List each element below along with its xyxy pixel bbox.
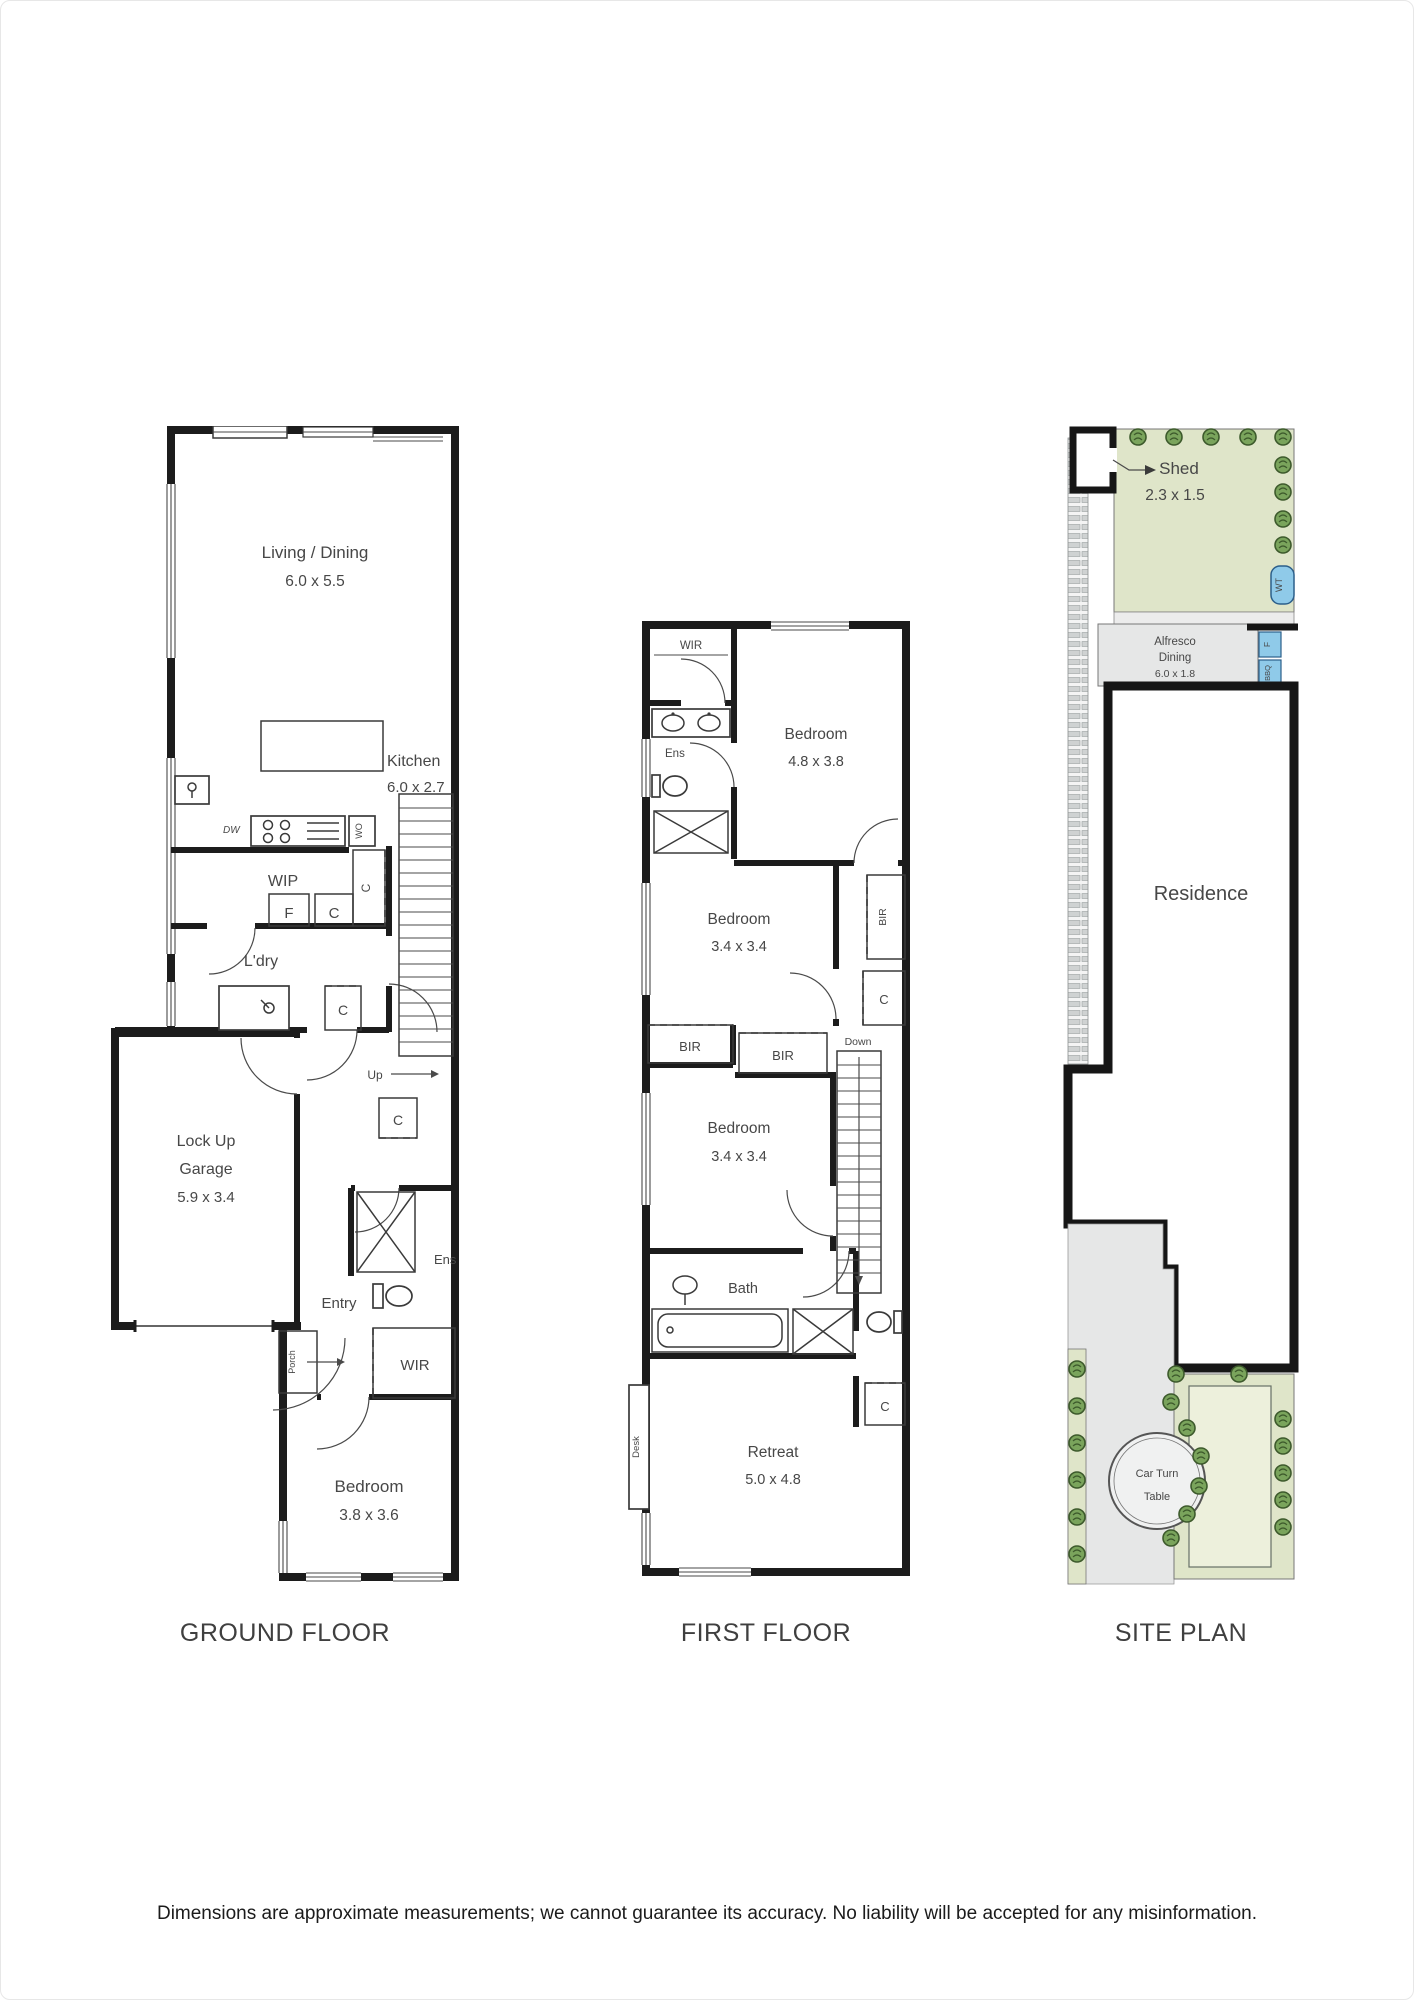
bath-basin <box>673 1276 697 1305</box>
retreat-label: Retreat <box>748 1444 800 1461</box>
bedroom2-dims: 3.4 x 3.4 <box>711 939 767 955</box>
shed-dims: 2.3 x 1.5 <box>1145 487 1204 504</box>
retreat-dims: 5.0 x 4.8 <box>745 1472 801 1488</box>
alfresco-label-1: Alfresco <box>1154 636 1196 648</box>
svg-text:C: C <box>880 1399 889 1414</box>
outdoor-fridge: F <box>1259 632 1281 657</box>
wip-label: WIP <box>268 873 298 890</box>
bedroom2-label: Bedroom <box>708 911 771 928</box>
bedroom1-dims: 4.8 x 3.8 <box>788 754 844 770</box>
ground-floor-plan: DW WO F C C <box>111 426 459 1594</box>
svg-text:C: C <box>393 1112 403 1128</box>
residence-label: Residence <box>1154 883 1249 905</box>
site-plan-svg: Shed 2.3 x 1.5 WT Alfresco Dining 6.0 x … <box>1061 424 1301 1601</box>
laundry-cupboard: C <box>325 986 361 1030</box>
svg-text:C: C <box>359 883 373 892</box>
wall-oven: WO <box>349 816 375 846</box>
toilet <box>373 1284 412 1308</box>
alfresco-label-2: Dining <box>1159 652 1192 664</box>
dishwasher-label: DW <box>223 825 241 836</box>
wir-label: WIR <box>680 640 702 652</box>
svg-text:WT: WT <box>1274 578 1284 592</box>
caption-first-floor: FIRST FLOOR <box>681 1619 851 1648</box>
entry-label: Entry <box>321 1295 357 1312</box>
wc-toilet <box>867 1311 902 1333</box>
fridge-label: F <box>284 905 293 922</box>
up-label: Up <box>367 1068 383 1082</box>
kitchen-label: Kitchen <box>387 753 440 770</box>
alfresco-dims: 6.0 x 1.8 <box>1155 668 1195 680</box>
svg-text:F: F <box>1262 642 1272 647</box>
kitchen-island <box>261 721 383 771</box>
garage-door <box>135 1320 273 1332</box>
svg-text:WO: WO <box>354 823 364 839</box>
bir-right-closet: BIR <box>867 875 905 959</box>
kitchen-dims: 6.0 x 2.7 <box>387 779 445 796</box>
kitchen-sink <box>175 776 209 804</box>
water-tank: WT <box>1271 566 1294 604</box>
first-floor-plan: WIR Ens Bedroom 4.8 x 3.8 Bedroom 3.4 x … <box>621 621 911 1596</box>
disclaimer-text: Dimensions are approximate measurements;… <box>1 1903 1413 1925</box>
side-path <box>1068 438 1088 1064</box>
bedroom3-label: Bedroom <box>708 1120 771 1137</box>
hall-cupboard: C <box>379 1098 417 1138</box>
ldry-label: L'dry <box>244 953 278 970</box>
top-step-window <box>373 437 443 441</box>
ens-label: Ens <box>665 748 685 760</box>
svg-text:BBQ: BBQ <box>1263 665 1272 681</box>
first-floor-svg: WIR Ens Bedroom 4.8 x 3.8 Bedroom 3.4 x … <box>621 621 911 1591</box>
laundry-trough <box>219 986 289 1030</box>
rear-garden <box>1114 429 1294 612</box>
site-plan: Shed 2.3 x 1.5 WT Alfresco Dining 6.0 x … <box>1061 424 1301 1606</box>
garage-label-1: Lock Up <box>177 1133 236 1150</box>
svg-text:C: C <box>338 1002 348 1018</box>
svg-text:BIR: BIR <box>679 1039 701 1054</box>
ens-vanity <box>652 709 730 737</box>
bir-b: BIR <box>739 1033 827 1073</box>
bedroom1-label: Bedroom <box>785 726 848 743</box>
ens-shower <box>654 811 728 853</box>
cooktop <box>251 816 345 846</box>
ens-toilet <box>652 775 687 797</box>
floorplan-page: DW WO F C C <box>0 0 1414 2000</box>
shed-label: Shed <box>1159 459 1199 478</box>
bath-shower <box>793 1309 853 1354</box>
turntable-label-2: Table <box>1144 1491 1170 1503</box>
down-label: Down <box>845 1036 872 1048</box>
wc-cupboard: C <box>865 1383 905 1425</box>
bir-a: BIR <box>648 1025 733 1063</box>
interior-walls <box>646 625 906 1427</box>
ens-label: Ens <box>434 1252 457 1267</box>
living-dims: 6.0 x 5.5 <box>285 573 344 590</box>
bedroom-dims: 3.8 x 3.6 <box>339 1507 398 1524</box>
cupboard-label: C <box>329 905 340 922</box>
turntable-label-1: Car Turn <box>1136 1468 1179 1480</box>
bedroom3-dims: 3.4 x 3.4 <box>711 1149 767 1165</box>
garage-dims: 5.9 x 3.4 <box>177 1189 235 1206</box>
svg-text:BIR: BIR <box>772 1048 794 1063</box>
stairs-down <box>837 1051 881 1293</box>
bathtub <box>652 1309 788 1352</box>
caption-ground-floor: GROUND FLOOR <box>180 1619 390 1648</box>
stairs-up <box>399 794 453 1056</box>
desk-label: Desk <box>631 1436 642 1458</box>
up-arrow <box>391 1070 439 1078</box>
svg-text:BIR: BIR <box>877 908 889 926</box>
ground-floor-svg: DW WO F C C <box>111 426 459 1589</box>
porch: Porch <box>279 1331 345 1393</box>
caption-site-plan: SITE PLAN <box>1115 1619 1247 1648</box>
svg-text:C: C <box>879 992 888 1007</box>
wir-label: WIR <box>400 1357 429 1374</box>
wip-side-cupboard: C <box>353 850 385 926</box>
desk: Desk <box>629 1385 649 1509</box>
garage-label-2: Garage <box>179 1161 232 1178</box>
bath-label: Bath <box>728 1281 758 1297</box>
porch-label: Porch <box>287 1350 297 1374</box>
shower <box>357 1192 415 1272</box>
bedroom-label: Bedroom <box>335 1477 404 1496</box>
outer-walls <box>642 621 906 1572</box>
hall-cupboard: C <box>863 971 905 1025</box>
rear-step <box>1114 612 1294 624</box>
interior-walls <box>171 846 455 1397</box>
pantry-closets <box>269 894 353 926</box>
living-label: Living / Dining <box>262 543 369 562</box>
